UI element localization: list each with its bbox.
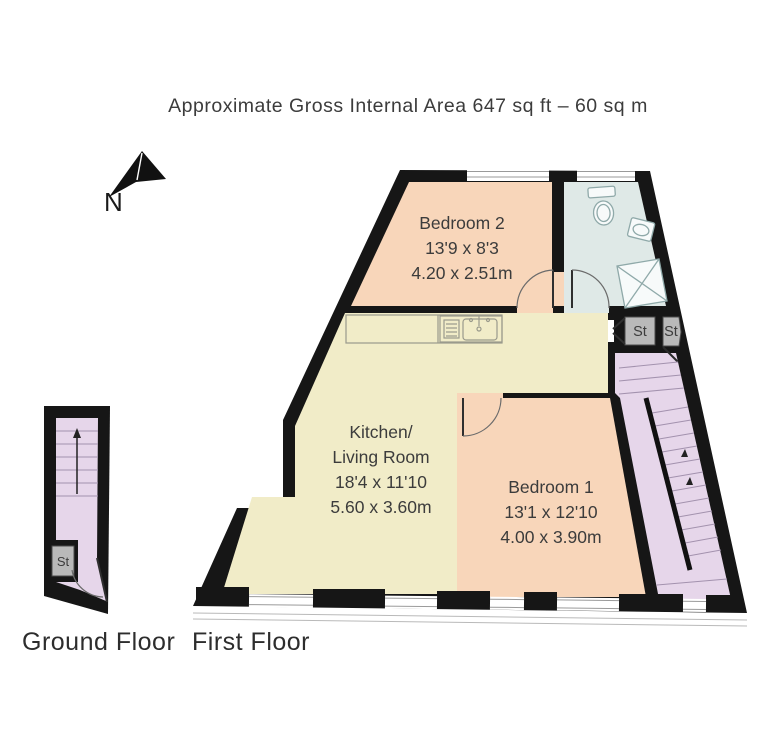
floorplan-page: Approximate Gross Internal Area 647 sq f… [0, 0, 768, 752]
first-floor-label: First Floor [192, 628, 310, 656]
page-title: Approximate Gross Internal Area 647 sq f… [168, 95, 648, 117]
north-arrow-icon: N [104, 151, 166, 217]
kitchen-dims-metric: 5.60 x 3.60m [330, 497, 431, 517]
storage-door-opening [608, 320, 614, 342]
storage-left-label: St [633, 324, 647, 340]
kitchen-name-line1: Kitchen/ [349, 422, 412, 442]
window-bathroom [577, 168, 635, 181]
bedroom1-name: Bedroom 1 [508, 477, 594, 497]
bedroom1-door-threshold [457, 393, 503, 398]
ground-floor-plan [44, 406, 110, 614]
storage-right-label: St [664, 324, 678, 340]
floor-plan-svg: Approximate Gross Internal Area 647 sq f… [0, 0, 768, 752]
bathroom-door-threshold [564, 306, 609, 313]
compass-north-label: N [104, 187, 123, 217]
kitchen-name-line2: Living Room [332, 447, 429, 467]
bedroom2-door-threshold [517, 306, 553, 313]
bedroom2-dims-metric: 4.20 x 2.51m [411, 263, 512, 283]
ground-floor-label: Ground Floor [22, 628, 175, 656]
kitchen-dims-imperial: 18'4 x 11'10 [335, 472, 427, 492]
bedroom2-dims-imperial: 13'9 x 8'3 [425, 238, 499, 258]
window-bedroom2 [467, 168, 549, 181]
storage-ground-label: St [57, 554, 70, 569]
bedroom1-dims-metric: 4.00 x 3.90m [500, 527, 601, 547]
bedroom2-name: Bedroom 2 [419, 213, 505, 233]
bedroom1-dims-imperial: 13'1 x 12'10 [504, 502, 598, 522]
shower-icon [617, 259, 667, 308]
sill-line-inner [193, 619, 747, 626]
sill-line-outer [193, 613, 747, 620]
